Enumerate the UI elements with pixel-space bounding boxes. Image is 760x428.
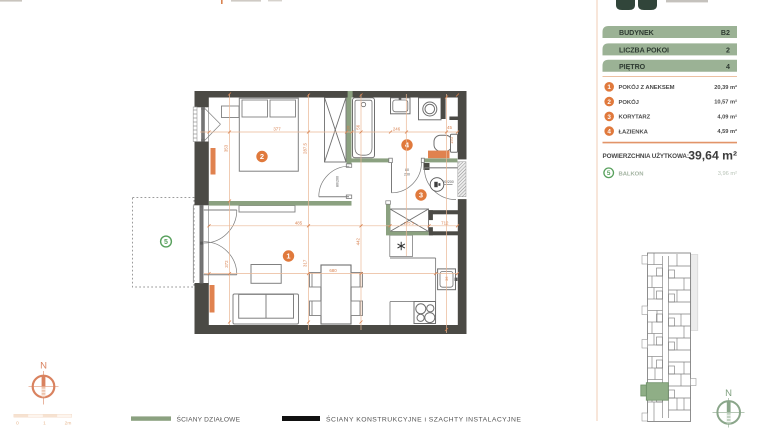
svg-text:56: 56 xyxy=(355,124,360,129)
svg-text:4,09 m²: 4,09 m² xyxy=(717,113,737,120)
svg-text:680: 680 xyxy=(329,268,337,273)
svg-text:LICZBA POKOI: LICZBA POKOI xyxy=(619,47,669,55)
svg-text:4: 4 xyxy=(607,129,611,136)
svg-text:377: 377 xyxy=(273,127,281,132)
svg-text:BUDYNEK: BUDYNEK xyxy=(619,29,655,37)
svg-text:2: 2 xyxy=(607,99,611,106)
svg-text:80/200: 80/200 xyxy=(336,176,340,187)
svg-text:26: 26 xyxy=(346,126,350,130)
svg-text:36: 36 xyxy=(444,276,449,281)
svg-text:KORYTARZ: KORYTARZ xyxy=(619,115,651,121)
svg-text:712: 712 xyxy=(441,221,449,226)
svg-text:442: 442 xyxy=(355,237,360,245)
svg-text:485: 485 xyxy=(295,220,303,225)
svg-text:372: 372 xyxy=(224,260,229,268)
svg-text:205.5: 205.5 xyxy=(404,221,415,226)
svg-text:246: 246 xyxy=(393,127,401,132)
svg-text:BALKON: BALKON xyxy=(619,171,644,177)
svg-text:PIĘTRO: PIĘTRO xyxy=(619,63,646,71)
svg-text:3: 3 xyxy=(607,114,611,121)
svg-text:POKÓJ: POKÓJ xyxy=(619,98,639,106)
svg-text:20,39 m²: 20,39 m² xyxy=(714,84,737,91)
svg-text:5: 5 xyxy=(607,170,611,177)
svg-text:ŁAZIENKA: ŁAZIENKA xyxy=(619,129,649,135)
svg-text:3: 3 xyxy=(419,191,423,200)
svg-text:ŚCIANY KONSTRUKCYJNE i SZACHTY: ŚCIANY KONSTRUKCYJNE i SZACHTY INSTALACY… xyxy=(326,414,521,423)
svg-text:0: 0 xyxy=(16,421,19,427)
svg-text:150: 150 xyxy=(449,136,454,143)
svg-text:2: 2 xyxy=(260,152,264,161)
svg-text:5: 5 xyxy=(164,239,168,246)
svg-text:45: 45 xyxy=(447,125,452,130)
svg-text:ŚCIANY DZIAŁOWE: ŚCIANY DZIAŁOWE xyxy=(177,414,241,423)
svg-text:3,96 m²: 3,96 m² xyxy=(718,171,737,177)
svg-text:B2: B2 xyxy=(721,29,730,37)
svg-text:2: 2 xyxy=(726,47,730,55)
svg-text:4,59 m²: 4,59 m² xyxy=(717,128,737,135)
svg-text:317: 317 xyxy=(302,259,307,267)
svg-text:N: N xyxy=(40,361,47,372)
svg-text:4: 4 xyxy=(726,63,730,71)
svg-text:80: 80 xyxy=(405,168,409,172)
svg-text:39,64 m²: 39,64 m² xyxy=(688,148,737,162)
svg-text:90/200: 90/200 xyxy=(443,180,454,184)
svg-text:287.5: 287.5 xyxy=(302,142,307,154)
svg-text:POKÓJ Z ANEKSEM: POKÓJ Z ANEKSEM xyxy=(619,83,675,91)
svg-text:353: 353 xyxy=(223,144,228,152)
svg-text:1: 1 xyxy=(43,421,46,427)
svg-text:N: N xyxy=(725,388,732,399)
svg-text:10,57 m²: 10,57 m² xyxy=(714,99,737,106)
svg-text:1: 1 xyxy=(286,252,290,261)
svg-text:2m: 2m xyxy=(65,421,72,427)
svg-text:1: 1 xyxy=(607,84,611,91)
svg-text:POWIERZCHNIA UŻYTKOWA:: POWIERZCHNIA UŻYTKOWA: xyxy=(603,152,689,160)
svg-text:200: 200 xyxy=(404,173,410,177)
